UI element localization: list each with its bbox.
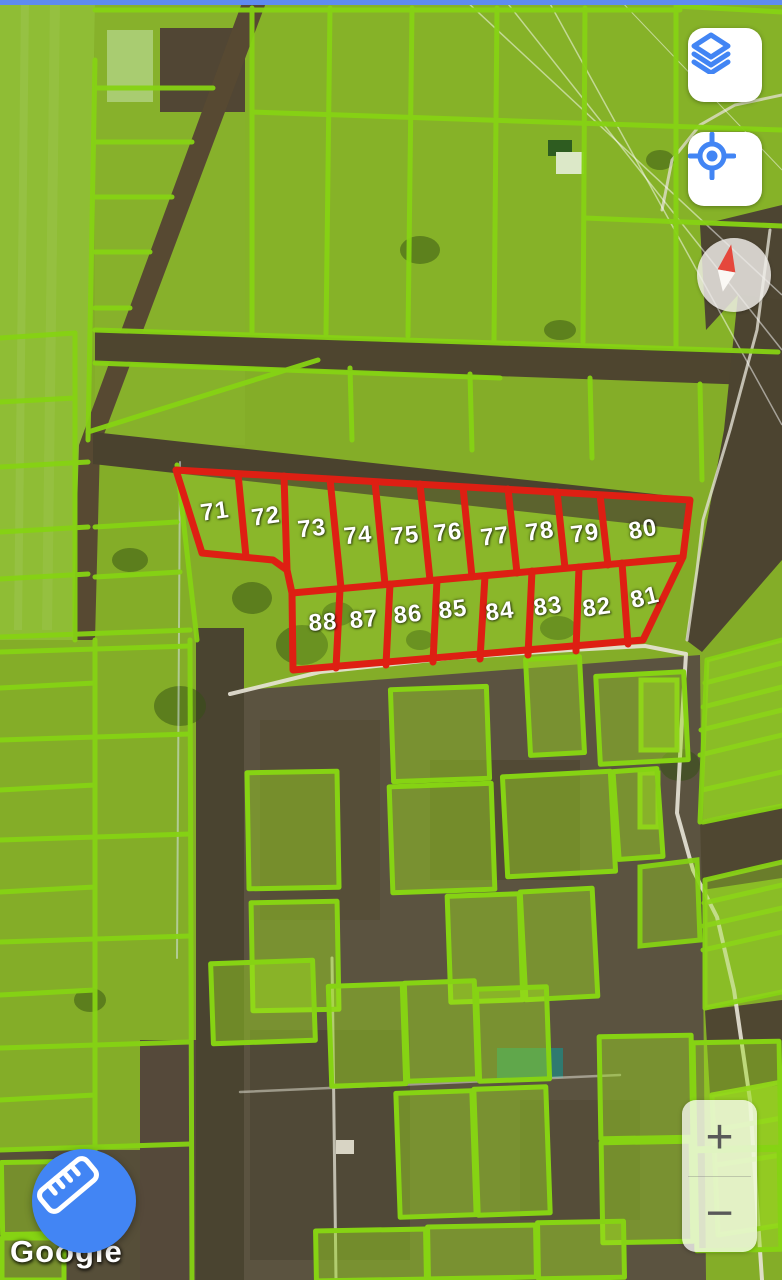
zoom-in-button[interactable]: + <box>682 1100 757 1176</box>
zoom-out-button[interactable]: − <box>682 1177 757 1253</box>
compass-button[interactable] <box>697 238 771 312</box>
top-boundary-line <box>0 0 782 5</box>
map-app: 717273747576777879808182838485868788 <box>0 0 782 1280</box>
zoom-control: + − <box>682 1100 757 1252</box>
satellite-map[interactable] <box>0 0 782 1280</box>
measure-button[interactable] <box>32 1149 136 1253</box>
zoom-out-label: − <box>705 1190 733 1238</box>
layers-button[interactable] <box>688 28 762 102</box>
zoom-in-label: + <box>705 1114 733 1162</box>
locate-button[interactable] <box>688 132 762 206</box>
